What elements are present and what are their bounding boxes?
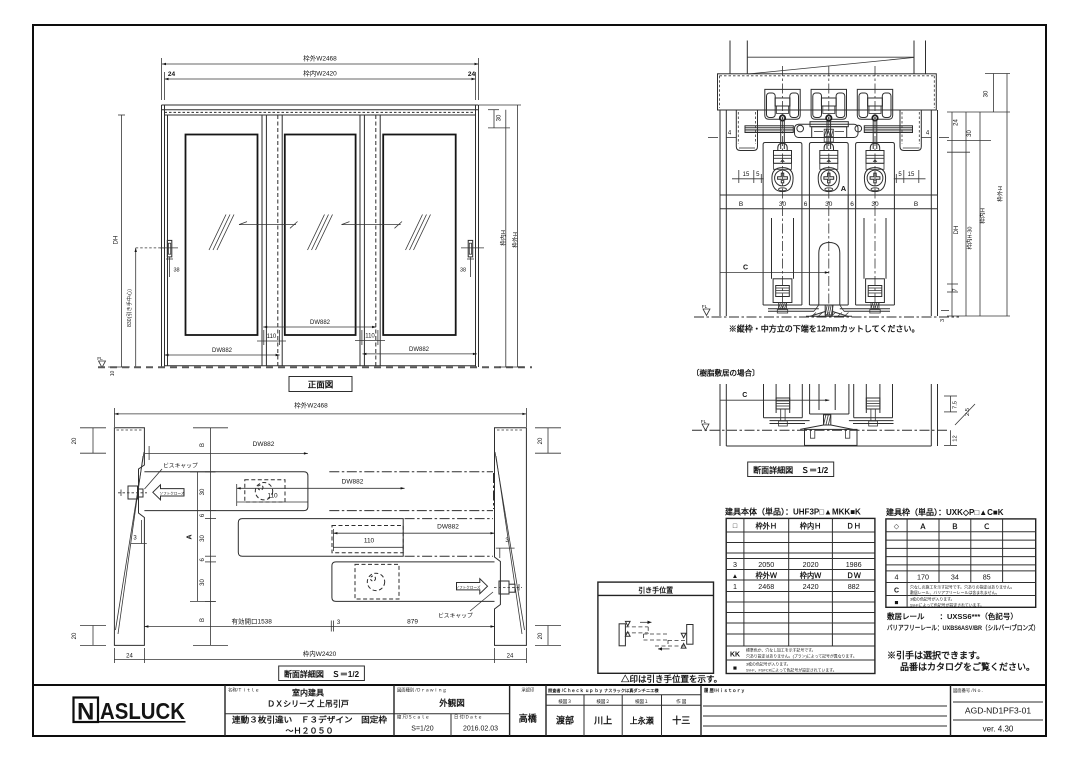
svg-text:Ｂ: Ｂ [951, 522, 958, 531]
svg-text:10: 10 [110, 371, 116, 377]
svg-text:KK: KK [730, 652, 740, 659]
svg-text:2420: 2420 [803, 582, 819, 591]
svg-text:十三: 十三 [672, 715, 690, 726]
svg-text:N: N [77, 699, 94, 726]
svg-text:有効開口1538: 有効開口1538 [231, 617, 272, 626]
svg-text:2050: 2050 [758, 560, 774, 569]
svg-text:85: 85 [983, 573, 991, 582]
svg-text:3枚の色記号が入ります。: 3枚の色記号が入ります。 [910, 597, 955, 602]
svg-text:A: A [841, 184, 847, 193]
svg-text:SV-Fによって色記号が設定されています。: SV-Fによって色記号が設定されています。 [910, 602, 984, 607]
svg-text:枠内H-30: 枠内H-30 [966, 227, 974, 250]
svg-text:枠外Ｈ: 枠外Ｈ [755, 522, 778, 531]
svg-text:DW882: DW882 [437, 524, 459, 531]
svg-text:C: C [894, 588, 899, 595]
svg-text:830(引き手中心): 830(引き手中心) [125, 289, 133, 327]
svg-text:ＤＷ: ＤＷ [847, 571, 862, 580]
svg-text:2016.02.03: 2016.02.03 [463, 726, 498, 733]
svg-text:30: 30 [497, 114, 503, 121]
svg-text:1: 1 [733, 582, 737, 591]
svg-text:15: 15 [908, 172, 915, 178]
svg-text:ビスキャップ: ビスキャップ [438, 612, 473, 620]
svg-text:30: 30 [779, 201, 787, 208]
svg-text:◇: ◇ [894, 524, 900, 531]
svg-text:7: 7 [953, 288, 959, 291]
svg-text:枠外W2468: 枠外W2468 [303, 54, 337, 63]
svg-text:～Ｈ２０５０: ～Ｈ２０５０ [286, 727, 334, 736]
svg-text:ＤＨ: ＤＨ [847, 522, 861, 531]
svg-text:■: ■ [895, 600, 899, 607]
svg-text:敷居レール ：UXSS6***（色記号）: 敷居レール ：UXSS6***（色記号） [887, 611, 1018, 621]
svg-text:DW882: DW882 [212, 348, 233, 354]
svg-text:B: B [200, 618, 206, 622]
svg-text:枠内Ｗ: 枠内Ｗ [799, 571, 822, 580]
svg-text:34: 34 [951, 573, 959, 582]
svg-text:24: 24 [954, 119, 960, 126]
svg-text:6: 6 [850, 201, 854, 208]
svg-text:20: 20 [72, 632, 78, 639]
svg-text:枠内H: 枠内H [979, 208, 987, 224]
svg-text:承認印: 承認印 [521, 687, 534, 694]
svg-text:バリアフリーレール：UXBS6ASV/BR（シルバー/ブロン: バリアフリーレール：UXBS6ASV/BR（シルバー/ブロンズ） [887, 623, 1039, 632]
svg-text:S=1/20: S=1/20 [411, 726, 433, 733]
svg-text:DW882: DW882 [342, 479, 364, 486]
svg-text:3: 3 [733, 560, 737, 569]
svg-text:※引手は選択できます。: ※引手は選択できます。 [887, 650, 985, 661]
svg-text:※縦枠・中方立の下端を12mmカットしてください。: ※縦枠・中方立の下端を12mmカットしてください。 [729, 324, 920, 334]
svg-text:30: 30 [825, 201, 833, 208]
svg-text:20: 20 [538, 437, 544, 444]
svg-text:DW882: DW882 [310, 320, 331, 326]
svg-text:ソフトクローズ: ソフトクローズ [160, 491, 185, 496]
svg-text:連動３枚引違い Ｆ３デザイン 固定枠: 連動３枚引違い Ｆ３デザイン 固定枠 [232, 715, 387, 725]
svg-text:110: 110 [267, 334, 277, 340]
svg-text:A: A [187, 534, 194, 539]
svg-text:DH: DH [954, 226, 960, 235]
svg-text:引き手位置: 引き手位置 [638, 585, 673, 594]
svg-text:882: 882 [848, 582, 860, 591]
svg-text:3枚の色記号が入ります。: 3枚の色記号が入ります。 [746, 662, 791, 667]
svg-text:30: 30 [200, 535, 206, 542]
svg-text:6: 6 [804, 201, 808, 208]
svg-text:30: 30 [200, 579, 206, 586]
svg-text:2020: 2020 [803, 560, 819, 569]
svg-text:38: 38 [174, 268, 180, 274]
svg-text:渡部: 渡部 [556, 715, 574, 726]
svg-text:C: C [742, 392, 747, 399]
svg-text:〔樹脂敷居の場合〕: 〔樹脂敷居の場合〕 [692, 368, 760, 378]
svg-text:170: 170 [917, 573, 929, 582]
svg-text:15: 15 [743, 172, 750, 178]
svg-text:名称/Ｔｉｔｌｅ: 名称/Ｔｉｔｌｅ [228, 687, 259, 694]
svg-text:SV-F、FSFCKによって色記号が設定されています。: SV-F、FSFCKによって色記号が設定されています。 [746, 668, 837, 673]
svg-text:ASLUCK: ASLUCK [100, 698, 185, 724]
svg-text:30: 30 [871, 201, 879, 208]
svg-text:川上: 川上 [593, 715, 612, 726]
svg-text:履 歴/Ｈｉｓｔｏｒｙ: 履 歴/Ｈｉｓｔｏｒｙ [703, 687, 745, 694]
svg-text:24: 24 [468, 71, 476, 78]
svg-text:枠外Ｗ: 枠外Ｗ [755, 571, 778, 580]
svg-text:△印は引き手位置を示す。: △印は引き手位置を示す。 [620, 674, 722, 684]
svg-text:12: 12 [953, 435, 959, 441]
svg-text:C: C [743, 265, 748, 272]
svg-text:図面番号 /Ｎｏ．: 図面番号 /Ｎｏ． [953, 687, 985, 694]
svg-text:ver. 4.30: ver. 4.30 [983, 725, 1014, 734]
svg-text:穴あり設定はありません。(プラン)によって記号が異なります。: 穴あり設定はありません。(プラン)によって記号が異なります。 [746, 654, 857, 659]
svg-text:24: 24 [168, 71, 176, 78]
svg-text:DW882: DW882 [253, 441, 275, 448]
svg-text:30: 30 [984, 90, 990, 97]
svg-text:断面詳細図 Ｓ＝1/2: 断面詳細図 Ｓ＝1/2 [753, 465, 829, 475]
svg-text:枠外H: 枠外H [511, 232, 519, 248]
svg-text:敷居レール、バリアフリーレールは含まれません。: 敷居レール、バリアフリーレールは含まれません。 [910, 590, 999, 595]
svg-text:枠内W2420: 枠内W2420 [303, 69, 337, 78]
svg-text:枠内Ｈ: 枠内Ｈ [799, 522, 822, 531]
svg-text:B: B [200, 443, 206, 447]
svg-text:B: B [914, 201, 918, 208]
svg-text:20: 20 [538, 632, 544, 639]
svg-text:24: 24 [507, 654, 514, 660]
svg-text:1986: 1986 [846, 560, 862, 569]
svg-text:建具枠（単品）：UXK◇P□▲C■K: 建具枠（単品）：UXK◇P□▲C■K [885, 507, 1004, 517]
svg-text:建具本体（単品）：UHF3P□▲MKK■K: 建具本体（単品）：UHF3P□▲MKK■K [724, 507, 861, 517]
svg-text:ビスキャップ: ビスキャップ [163, 462, 198, 470]
svg-text:▲: ▲ [732, 573, 738, 580]
svg-text:枠外H: 枠外H [996, 186, 1004, 202]
svg-text:4: 4 [895, 573, 899, 582]
svg-text:日 付/Ｄａｔｅ: 日 付/Ｄａｔｅ [454, 714, 482, 721]
svg-text:作 図: 作 図 [676, 698, 687, 705]
svg-text:DH: DH [114, 236, 120, 245]
svg-text:検図３: 検図３ [558, 698, 572, 705]
svg-text:断面詳細図 Ｓ＝1/2: 断面詳細図 Ｓ＝1/2 [284, 669, 360, 679]
svg-text:2468: 2468 [758, 582, 774, 591]
svg-text:DW882: DW882 [409, 347, 430, 353]
svg-text:AGD-ND1PF3-01: AGD-ND1PF3-01 [965, 706, 1031, 716]
svg-text:30: 30 [200, 488, 206, 495]
svg-text:ソフトクローズ: ソフトクローズ [456, 585, 481, 590]
svg-text:3: 3 [940, 319, 946, 322]
svg-text:枠外W2468: 枠外W2468 [294, 401, 328, 410]
svg-text:検図２: 検図２ [596, 698, 610, 705]
svg-text:品番はカタログをご覧ください。: 品番はカタログをご覧ください。 [900, 661, 1035, 672]
svg-text:検図１: 検図１ [635, 698, 649, 705]
svg-text:外観図: 外観図 [438, 698, 465, 708]
svg-text:枠内H: 枠内H [499, 230, 507, 246]
svg-text:B: B [739, 201, 743, 208]
svg-text:高橋: 高橋 [519, 713, 538, 724]
svg-text:上永瀬: 上永瀬 [630, 716, 654, 726]
svg-text:30: 30 [967, 130, 973, 137]
svg-text:110: 110 [364, 538, 375, 545]
svg-text:■: ■ [733, 665, 737, 672]
svg-text:7.5: 7.5 [953, 401, 959, 409]
svg-text:38: 38 [460, 268, 466, 274]
svg-text:室内建具: 室内建具 [292, 688, 324, 698]
svg-text:110: 110 [365, 334, 375, 340]
svg-text:照査者 /Ｃｈｅｃｋ ｕｐ ｂｙ ナスラックは真ダンチニエ様: 照査者 /Ｃｈｅｃｋ ｕｐ ｂｙ ナスラックは真ダンチニエ様 [548, 687, 659, 694]
svg-text:枠内W2420: 枠内W2420 [303, 649, 337, 658]
svg-text:標準色か、穴なし加工を示す記号です。: 標準色か、穴なし加工を示す記号です。 [746, 648, 816, 653]
svg-text:縮 尺/Ｓｃａｌｅ: 縮 尺/Ｓｃａｌｅ [397, 714, 429, 721]
svg-text:24: 24 [126, 654, 133, 660]
svg-text:Ｃ: Ｃ [983, 522, 990, 531]
svg-text:20: 20 [72, 437, 78, 444]
svg-text:穴なしの施工を示す記号です。穴ありの指定はありません。: 穴なしの施工を示す記号です。穴ありの指定はありません。 [910, 585, 1015, 590]
svg-text:Ａ: Ａ [919, 522, 926, 531]
svg-text:110: 110 [267, 493, 278, 500]
svg-text:ＤＸシリーズ 上吊引戸: ＤＸシリーズ 上吊引戸 [267, 699, 349, 709]
svg-text:正面図: 正面図 [308, 380, 334, 390]
svg-text:図面種別 /Ｄｒａｗｉｎｇ: 図面種別 /Ｄｒａｗｉｎｇ [397, 687, 447, 694]
svg-text:879: 879 [407, 619, 418, 626]
